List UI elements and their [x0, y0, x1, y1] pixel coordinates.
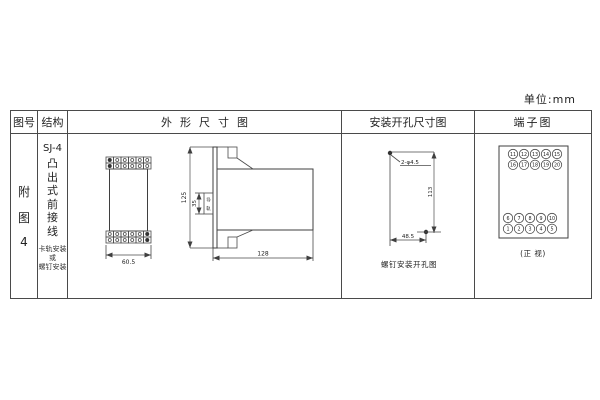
rail-label-char: 轨 [206, 205, 211, 212]
figure-no-char: 4 [20, 235, 28, 249]
structure-type-char: 接 [47, 211, 58, 225]
unit-label: 单位:mm [524, 91, 576, 107]
front-terminal-strip-top [106, 157, 151, 169]
front-terminal-strip-bottom [106, 231, 151, 243]
terminal-number: 12 [521, 152, 527, 158]
terminal-number: 4 [539, 227, 542, 233]
header-figure-no: 图号 [11, 111, 38, 133]
terminal-number: 20 [554, 163, 560, 169]
structure-type-char: 凸 [47, 157, 58, 171]
mounting-caption: 螺钉安装开孔图 [381, 259, 437, 269]
terminal-number: 1 [506, 227, 509, 233]
terminal-number: 8 [528, 216, 531, 222]
figure-no-cell: 附 图 4 [11, 134, 38, 298]
header-terminal-label: 端子图 [514, 114, 553, 130]
header-terminal: 端子图 [475, 111, 591, 133]
header-structure-label: 结构 [42, 114, 64, 130]
terminal-diagram-drawing: 11121314151617181920 67891012345 (正 视) [475, 134, 587, 296]
structure-cell: SJ-4 凸 出 式 前 接 线 卡轨安装 或 螺钉安装 [38, 134, 68, 298]
datasheet-page: 单位:mm 图号 结构 外形尺寸图 安装开孔尺寸图 端子图 附 图 4 SJ-4… [0, 0, 600, 400]
structure-type-char: 前 [47, 198, 58, 212]
terminal-bottom-rows: 67891012345 [503, 213, 556, 233]
side-view-drawing: 125 导 轨 [181, 147, 313, 261]
mount-note-line: 卡轨安装 [39, 245, 67, 254]
terminal-number: 7 [517, 216, 520, 222]
outline-cell: 60.5 125 [68, 134, 342, 298]
rail-label-char: 导 [206, 198, 211, 204]
terminal-number: 3 [528, 227, 531, 233]
structure-type-char: 式 [47, 184, 58, 198]
terminal-number: 19 [543, 163, 549, 169]
mount-note-line: 螺钉安装 [39, 263, 67, 272]
terminal-number: 13 [532, 152, 538, 158]
terminal-number: 10 [549, 216, 555, 222]
mounting-hole-top [388, 151, 392, 155]
terminal-number: 2 [517, 227, 520, 233]
figure-no-char: 图 [18, 209, 30, 226]
height-dim: 125 [181, 192, 188, 204]
header-mounting-label: 安装开孔尺寸图 [370, 114, 447, 130]
terminal-number: 14 [543, 152, 549, 158]
model-label: SJ-4 [43, 143, 62, 154]
mounting-cell: 2-φ4.5 113 48.5 螺钉安装开孔图 [342, 134, 475, 298]
mount-note: 卡轨安装 或 螺钉安装 [39, 245, 67, 272]
header-outline-label: 外形尺寸图 [153, 114, 256, 130]
vertical-spacing-dim: 113 [428, 186, 434, 197]
terminal-number: 16 [510, 163, 516, 169]
mounting-hole-drawing: 2-φ4.5 113 48.5 螺钉安装开孔图 [342, 134, 475, 296]
header-structure: 结构 [38, 111, 68, 133]
front-width-dim: 60.5 [122, 259, 136, 266]
terminal-number: 17 [521, 163, 527, 169]
terminal-number: 9 [539, 216, 542, 222]
terminal-caption: (正 视) [520, 248, 546, 258]
terminal-number: 5 [550, 227, 553, 233]
figure-no-char: 附 [18, 183, 30, 200]
terminal-number: 6 [506, 216, 509, 222]
table-header-row: 图号 结构 外形尺寸图 安装开孔尺寸图 端子图 [11, 111, 591, 134]
terminal-number: 18 [532, 163, 538, 169]
front-view-drawing: 60.5 [106, 157, 151, 266]
spec-table: 图号 结构 外形尺寸图 安装开孔尺寸图 端子图 附 图 4 SJ-4 凸 出 式… [10, 110, 592, 299]
terminal-number: 11 [510, 152, 516, 158]
terminal-cell: 11121314151617181920 67891012345 (正 视) [475, 134, 591, 298]
header-mounting: 安装开孔尺寸图 [342, 111, 475, 133]
header-figure-no-label: 图号 [13, 114, 35, 130]
structure-type-char: 线 [47, 225, 58, 239]
structure-type-char: 出 [47, 171, 58, 185]
rail-width-dim: 35 [192, 200, 198, 207]
terminal-number: 15 [554, 152, 560, 158]
mount-note-line: 或 [39, 254, 67, 263]
header-outline: 外形尺寸图 [68, 111, 342, 133]
horizontal-spacing-dim: 48.5 [402, 234, 415, 240]
outline-dimension-drawing: 60.5 125 [68, 134, 342, 296]
depth-dim: 128 [257, 251, 269, 258]
terminal-top-rows: 11121314151617181920 [508, 149, 561, 169]
table-body-row: 附 图 4 SJ-4 凸 出 式 前 接 线 卡轨安装 或 螺钉安装 [11, 134, 591, 298]
